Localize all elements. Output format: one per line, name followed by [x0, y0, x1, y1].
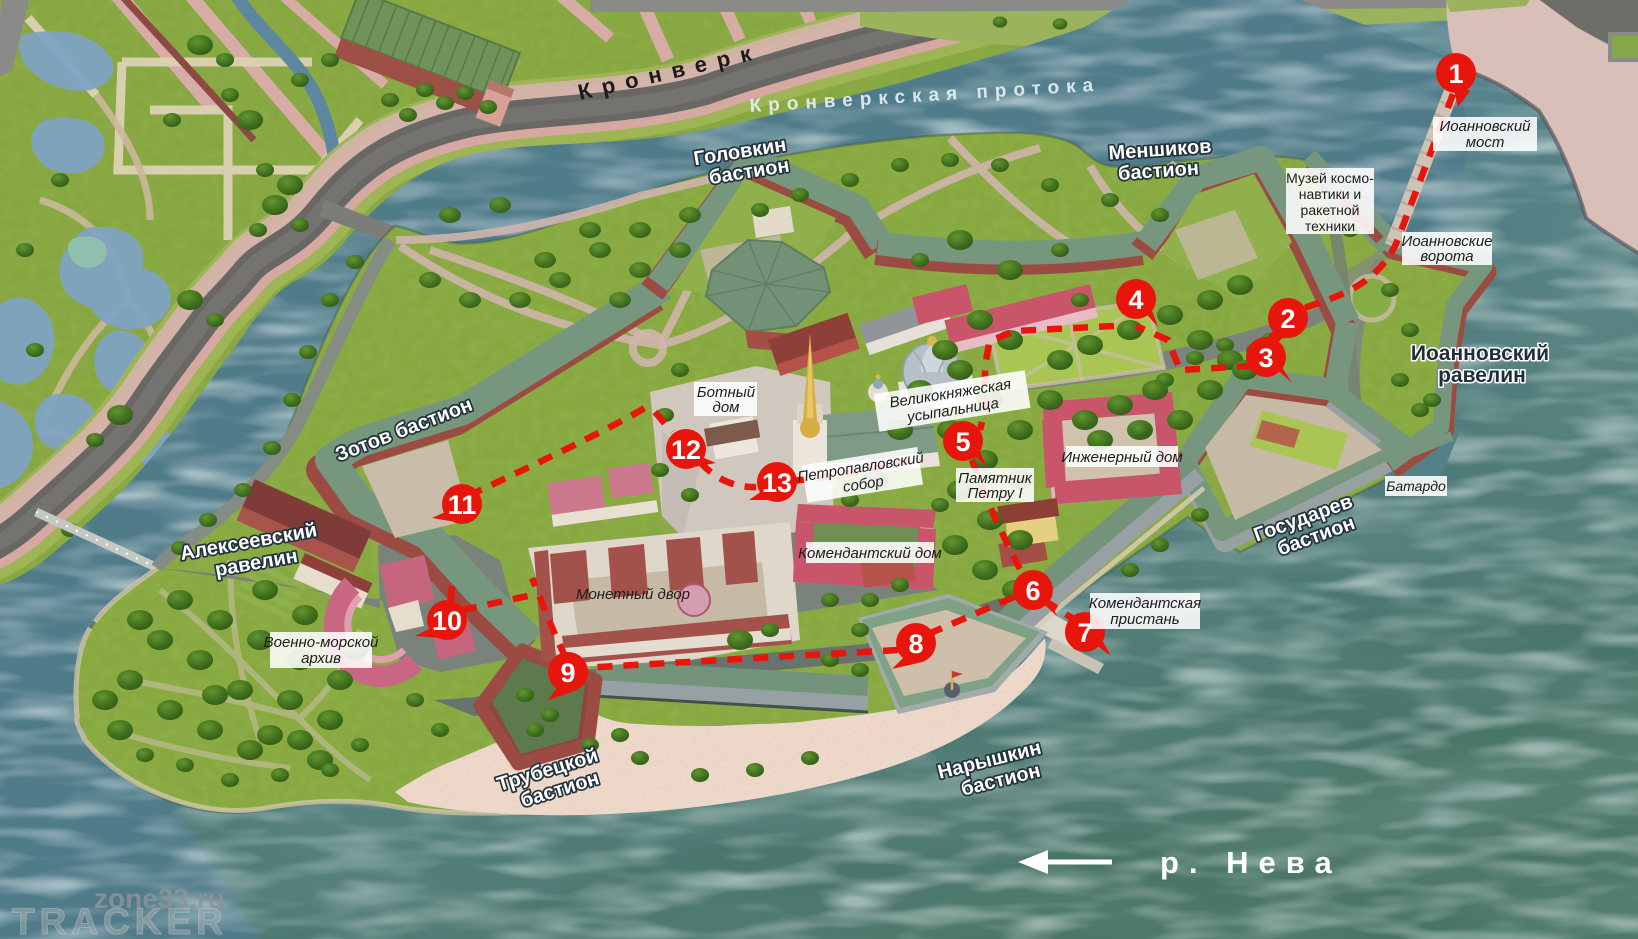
svg-text:архив: архив [301, 650, 341, 667]
svg-text:Инженерный дом: Инженерный дом [1061, 449, 1182, 466]
svg-text:1: 1 [1448, 59, 1463, 89]
svg-text:Музей космо-: Музей космо- [1286, 170, 1374, 186]
svg-text:8: 8 [908, 629, 923, 659]
svg-text:ракетной: ракетной [1301, 202, 1360, 218]
svg-text:Батардо: Батардо [1386, 478, 1446, 494]
svg-text:мост: мост [1466, 134, 1505, 151]
svg-text:6: 6 [1025, 576, 1040, 606]
svg-text:навтики и: навтики и [1299, 186, 1362, 202]
svg-text:TRACKER: TRACKER [12, 901, 228, 939]
svg-text:10: 10 [432, 606, 462, 636]
svg-text:12: 12 [671, 435, 701, 465]
svg-text:9: 9 [560, 658, 575, 688]
svg-text:4: 4 [1128, 285, 1143, 315]
svg-text:Петру I: Петру I [967, 485, 1022, 502]
svg-text:Комендантская: Комендантская [1089, 595, 1201, 612]
svg-text:13: 13 [762, 468, 792, 498]
svg-text:11: 11 [448, 490, 477, 520]
svg-text:техники: техники [1305, 218, 1355, 234]
svg-text:равелин: равелин [1438, 364, 1526, 387]
svg-text:ворота: ворота [1420, 248, 1473, 265]
svg-text:Иоанновский: Иоанновский [1439, 118, 1531, 135]
svg-text:Иоанновский: Иоанновский [1411, 342, 1549, 365]
svg-text:2: 2 [1280, 304, 1295, 334]
svg-text:Военно-морской: Военно-морской [264, 634, 379, 651]
svg-text:Комендантский дом: Комендантский дом [798, 545, 942, 562]
svg-text:пристань: пристань [1110, 611, 1179, 628]
svg-text:5: 5 [955, 427, 970, 457]
svg-text:Монетный двор: Монетный двор [576, 586, 690, 603]
svg-text:3: 3 [1258, 343, 1273, 373]
svg-text:р. Нева: р. Нева [1160, 845, 1342, 880]
svg-text:дом: дом [713, 399, 740, 416]
